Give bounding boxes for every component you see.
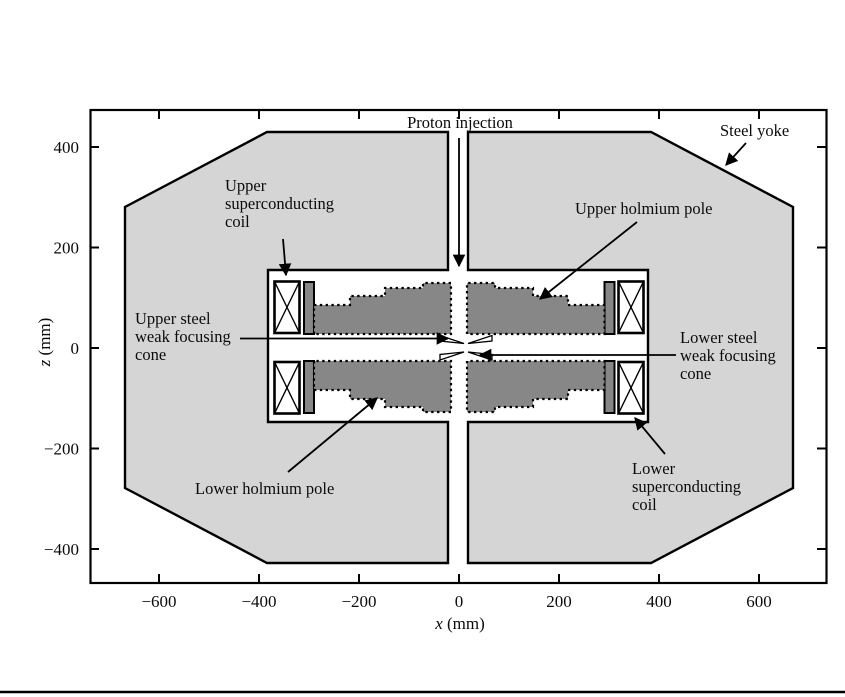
upper-left-holmium-pole	[314, 283, 451, 334]
label-line: superconducting	[632, 477, 741, 496]
upper-right-coil	[619, 282, 644, 334]
upper-left-cone	[440, 336, 464, 344]
label-line: weak focusing	[680, 346, 776, 365]
magnet-cross-section-figure: Proton injection Steel yoke Upper superc…	[0, 0, 845, 697]
lower-left-holmium-pole	[314, 361, 451, 412]
z-tick-label: 400	[54, 138, 80, 157]
label-line: Upper steel	[135, 309, 211, 328]
x-tick-label: 400	[646, 592, 672, 611]
x-axis-ticks-bottom	[159, 574, 759, 583]
upper-holmium-pole-label: Upper holmium pole	[575, 199, 712, 218]
lower-holmium-pole-label: Lower holmium pole	[195, 479, 334, 498]
label-line: Lower steel	[680, 328, 758, 347]
lower-right-holmium-pole	[467, 361, 605, 412]
superconducting-coils	[275, 282, 644, 414]
z-tick-label: −400	[44, 540, 79, 559]
lower-right-bar	[605, 361, 615, 413]
label-line: coil	[632, 495, 657, 514]
label-line: Upper	[225, 176, 267, 195]
lower-left-bar	[304, 361, 314, 413]
x-axis-tick-labels: −600 −400 −200 0 200 400 600	[141, 592, 771, 611]
label-line: weak focusing	[135, 327, 231, 346]
lower-left-cone	[440, 352, 464, 360]
x-tick-label: 0	[455, 592, 464, 611]
x-tick-label: 200	[546, 592, 572, 611]
upper-left-bar	[304, 282, 314, 334]
z-tick-label: 200	[54, 239, 80, 258]
x-axis-unit: (mm)	[443, 614, 485, 633]
z-axis-title: z (mm)	[35, 318, 54, 368]
upper-left-coil	[275, 282, 300, 334]
x-tick-label: −200	[341, 592, 376, 611]
upper-right-bar	[605, 282, 615, 334]
label-line: Lower	[632, 459, 676, 478]
z-axis-ticks-right	[817, 147, 826, 549]
proton-injection-label: Proton injection	[407, 113, 513, 132]
x-tick-label: −400	[241, 592, 276, 611]
lower-left-coil	[275, 362, 300, 414]
upper-right-holmium-pole	[467, 283, 605, 334]
label-line: cone	[135, 345, 166, 364]
figure-page: Proton injection Steel yoke Upper superc…	[0, 0, 845, 697]
steel-yoke-label: Steel yoke	[720, 121, 789, 140]
holmium-poles	[314, 283, 605, 412]
x-tick-label: −600	[141, 592, 176, 611]
z-tick-label: −200	[44, 440, 79, 459]
x-tick-label: 600	[746, 592, 772, 611]
label-line: superconducting	[225, 194, 334, 213]
z-tick-label: 0	[71, 339, 80, 358]
lower-right-cone	[468, 352, 492, 360]
upper-right-cone	[468, 336, 492, 344]
x-axis-title: x (mm)	[434, 614, 485, 633]
label-line: cone	[680, 364, 711, 383]
z-axis-unit: (mm)	[35, 318, 54, 360]
label-line: coil	[225, 212, 250, 231]
lower-right-coil	[619, 362, 644, 414]
steel-yoke-arrow	[726, 143, 746, 165]
